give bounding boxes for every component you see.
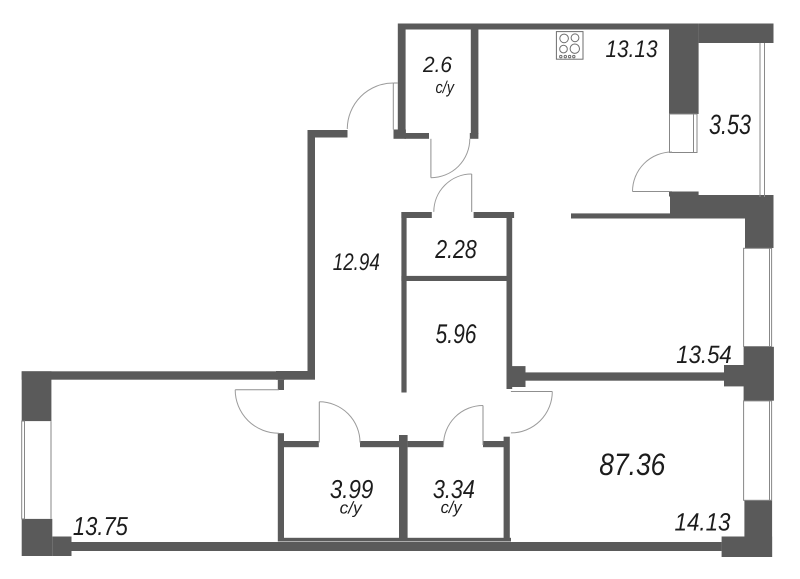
svg-text:87.36: 87.36 xyxy=(599,447,666,482)
svg-text:с/у: с/у xyxy=(340,499,364,518)
svg-text:с/у: с/у xyxy=(435,78,455,97)
svg-text:с/у: с/у xyxy=(441,498,463,517)
svg-text:14.13: 14.13 xyxy=(675,509,731,537)
svg-text:2.6: 2.6 xyxy=(422,52,453,77)
svg-text:13.13: 13.13 xyxy=(606,36,659,63)
svg-text:2.28: 2.28 xyxy=(434,234,477,264)
svg-text:5.96: 5.96 xyxy=(436,319,478,349)
svg-text:3.53: 3.53 xyxy=(709,109,751,140)
svg-text:12.94: 12.94 xyxy=(333,249,380,276)
svg-text:13.75: 13.75 xyxy=(73,511,128,541)
svg-text:13.54: 13.54 xyxy=(676,341,732,369)
